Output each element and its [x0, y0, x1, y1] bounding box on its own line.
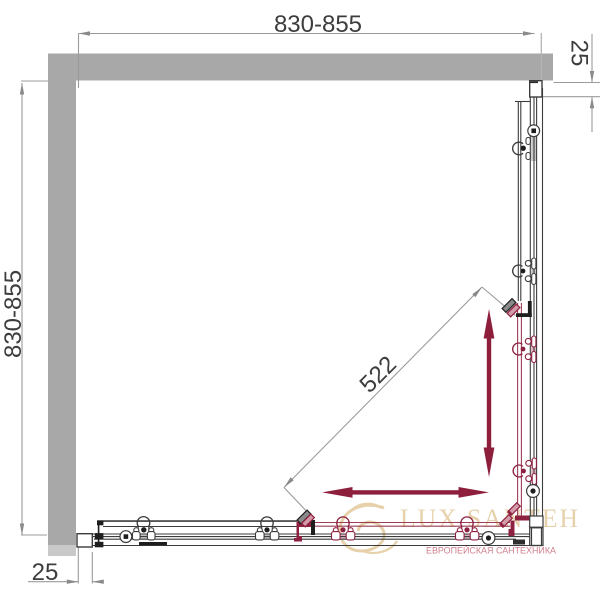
svg-text:ЕВРОПЕЙСКАЯ САНТЕХНИКА: ЕВРОПЕЙСКАЯ САНТЕХНИКА — [426, 545, 557, 557]
svg-text:25: 25 — [32, 559, 59, 586]
svg-text:830-855: 830-855 — [0, 270, 27, 358]
svg-text:LUX SANTEH: LUX SANTEH — [400, 504, 580, 533]
svg-text:25: 25 — [566, 40, 593, 67]
svg-text:830-855: 830-855 — [274, 11, 362, 38]
